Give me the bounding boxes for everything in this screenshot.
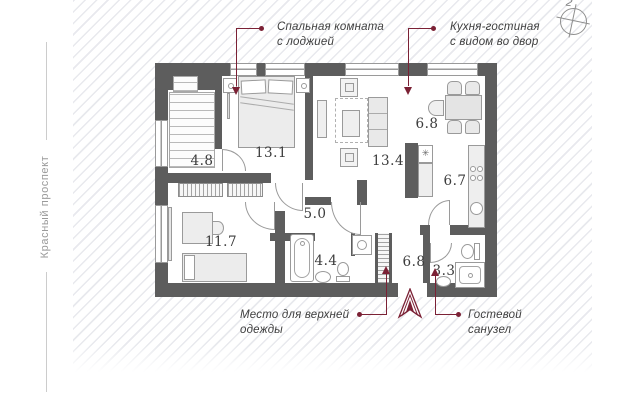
wall-segment [168,173,271,183]
window [155,120,168,167]
wall-segment [485,76,497,283]
door-arc [331,202,361,235]
annotation-bedroom-line1: Спальная комната [277,20,384,35]
door-arc [245,202,275,230]
compass-icon [556,4,590,38]
wall-segment [215,76,222,149]
toilet [461,244,474,259]
room-area-bathroom: 4.4 [315,253,338,269]
leader-line [435,314,459,315]
toilet [337,262,349,276]
sink [315,271,331,283]
bathtub [290,234,314,282]
hatch-fade [73,344,592,372]
coffee-table [342,110,360,137]
room-area-entry: 6.8 [403,254,426,270]
kitchen-cabinet [418,163,433,197]
leader-line [435,275,436,315]
leader-line [236,28,237,86]
annotation-wardrobe: Место для верхней одежды [240,308,349,338]
entry-wardrobe [375,233,392,283]
annotation-wardrobe-line1: Место для верхней [240,308,349,323]
street-rule-top [46,42,47,140]
room-area-stairs: 4.8 [191,153,214,169]
room-area-dining: 6.8 [416,116,439,132]
wall-segment [305,197,331,205]
street-rule-bottom [46,272,47,392]
window [230,63,257,76]
double-bed [238,76,295,148]
annotation-arrow-up [431,268,439,276]
door-arc [428,200,450,225]
leader-line [408,28,409,86]
annotation-guest-wc-line1: Гостевой [468,308,522,323]
window [155,205,168,263]
chair [447,81,462,95]
fridge: ✳ [418,145,433,163]
wall-segment [420,225,430,235]
wardrobe [227,183,263,197]
annotation-arrow-down [232,87,240,95]
apartment-plan: ✳ 4.8 13.1 13.4 6.8 6.7 5.0 11.7 4.4 6.8… [155,63,497,297]
room-area-kitchen: 6.7 [444,173,467,189]
door-arc [222,149,246,171]
window [265,63,305,76]
annotation-arrow-down [404,87,412,95]
floor-plan-page: { "street_label": "Красный проспект", "c… [0,0,640,400]
armchair [428,100,444,116]
radiator [168,207,172,261]
leader-line [386,273,387,315]
street-name-label: Красный проспект [39,156,51,259]
side-table [340,148,358,167]
stairs [173,76,198,92]
leader-line [236,28,262,29]
annotation-kitchen-line2: с видом во двор [450,35,540,50]
fridge-mark: ✳ [419,148,432,159]
kitchen-counter [468,145,485,228]
dining-table [445,95,482,120]
annotation-wardrobe-line2: одежды [240,323,349,338]
radiator [227,93,230,119]
leader-line [361,314,387,315]
chair [465,81,480,95]
nightstand [296,78,310,93]
annotation-guest-wc: Гостевой санузел [468,308,522,338]
annotation-arrow-up [382,266,390,274]
room-area-bedroom: 13.1 [255,145,287,161]
wall-segment [275,211,285,283]
shower [455,262,485,288]
single-bed [182,253,247,282]
annotation-bedroom: Спальная комната с лоджией [277,20,384,50]
kitchen-sink [470,202,483,215]
window [345,63,399,76]
stove [468,163,485,185]
window [427,63,478,76]
annotation-kitchen-line1: Кухня-гостиная [450,20,540,35]
room-area-living: 13.4 [372,153,404,169]
chair [447,120,462,134]
leader-line [408,28,434,29]
sofa [368,97,388,147]
annotation-guest-wc-line2: санузел [468,323,522,338]
door-arc [430,243,452,263]
washing-machine [352,235,372,255]
annotation-kitchen: Кухня-гостиная с видом во двор [450,20,540,50]
toilet-tank [336,276,350,282]
wall-segment [405,143,418,198]
wardrobe [178,183,223,197]
door-arc [275,183,303,211]
toilet-tank [474,243,480,260]
side-table [340,78,358,97]
room-area-hallway: 5.0 [304,206,327,222]
tv-stand [317,100,327,138]
room-area-bedroom2: 11.7 [205,234,237,250]
desk-chair [212,221,224,235]
chair [465,120,480,134]
entrance-marker-icon [397,288,423,325]
annotation-bedroom-line2: с лоджией [277,35,384,50]
